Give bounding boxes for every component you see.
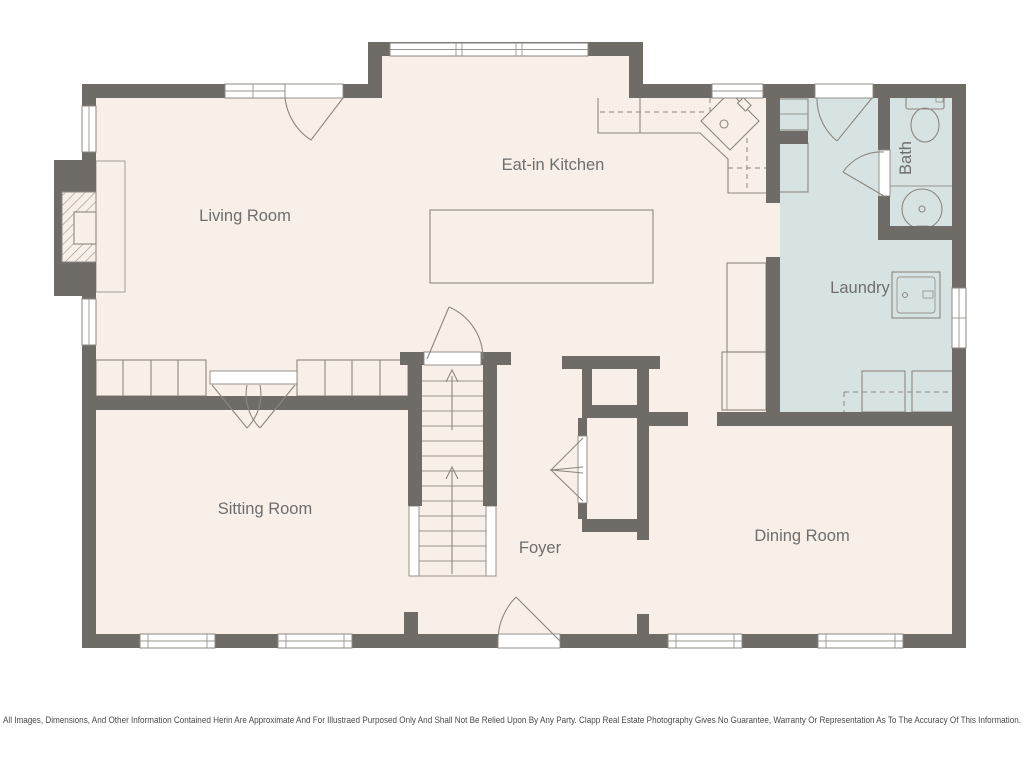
kitchen-bumpout-floor	[382, 56, 629, 100]
window	[225, 84, 285, 98]
window	[952, 288, 966, 348]
window	[818, 634, 903, 648]
window	[668, 634, 742, 648]
room-label-sitting-room: Sitting Room	[218, 500, 312, 518]
firebox	[62, 192, 96, 262]
room-label-dining-room: Dining Room	[754, 527, 849, 545]
room-label-bath: Bath	[897, 141, 915, 175]
window	[278, 634, 352, 648]
floor-plan-canvas: Living Room Eat-in Kitchen Bath Laundry …	[0, 0, 1024, 768]
window	[82, 299, 96, 345]
stair-railing-left	[409, 506, 419, 576]
window	[82, 106, 96, 152]
window-bank-kitchen	[390, 43, 588, 56]
kitchen-laundry-opening	[766, 203, 780, 257]
room-label-foyer: Foyer	[519, 539, 562, 557]
stair-railing-right	[486, 506, 496, 576]
room-label-laundry: Laundry	[830, 279, 890, 297]
disclaimer-text: All Images, Dimensions, And Other Inform…	[3, 715, 1021, 726]
window	[140, 634, 215, 648]
window	[712, 84, 763, 98]
room-label-living-room: Living Room	[199, 207, 291, 225]
room-label-eat-in-kitchen: Eat-in Kitchen	[502, 156, 605, 174]
